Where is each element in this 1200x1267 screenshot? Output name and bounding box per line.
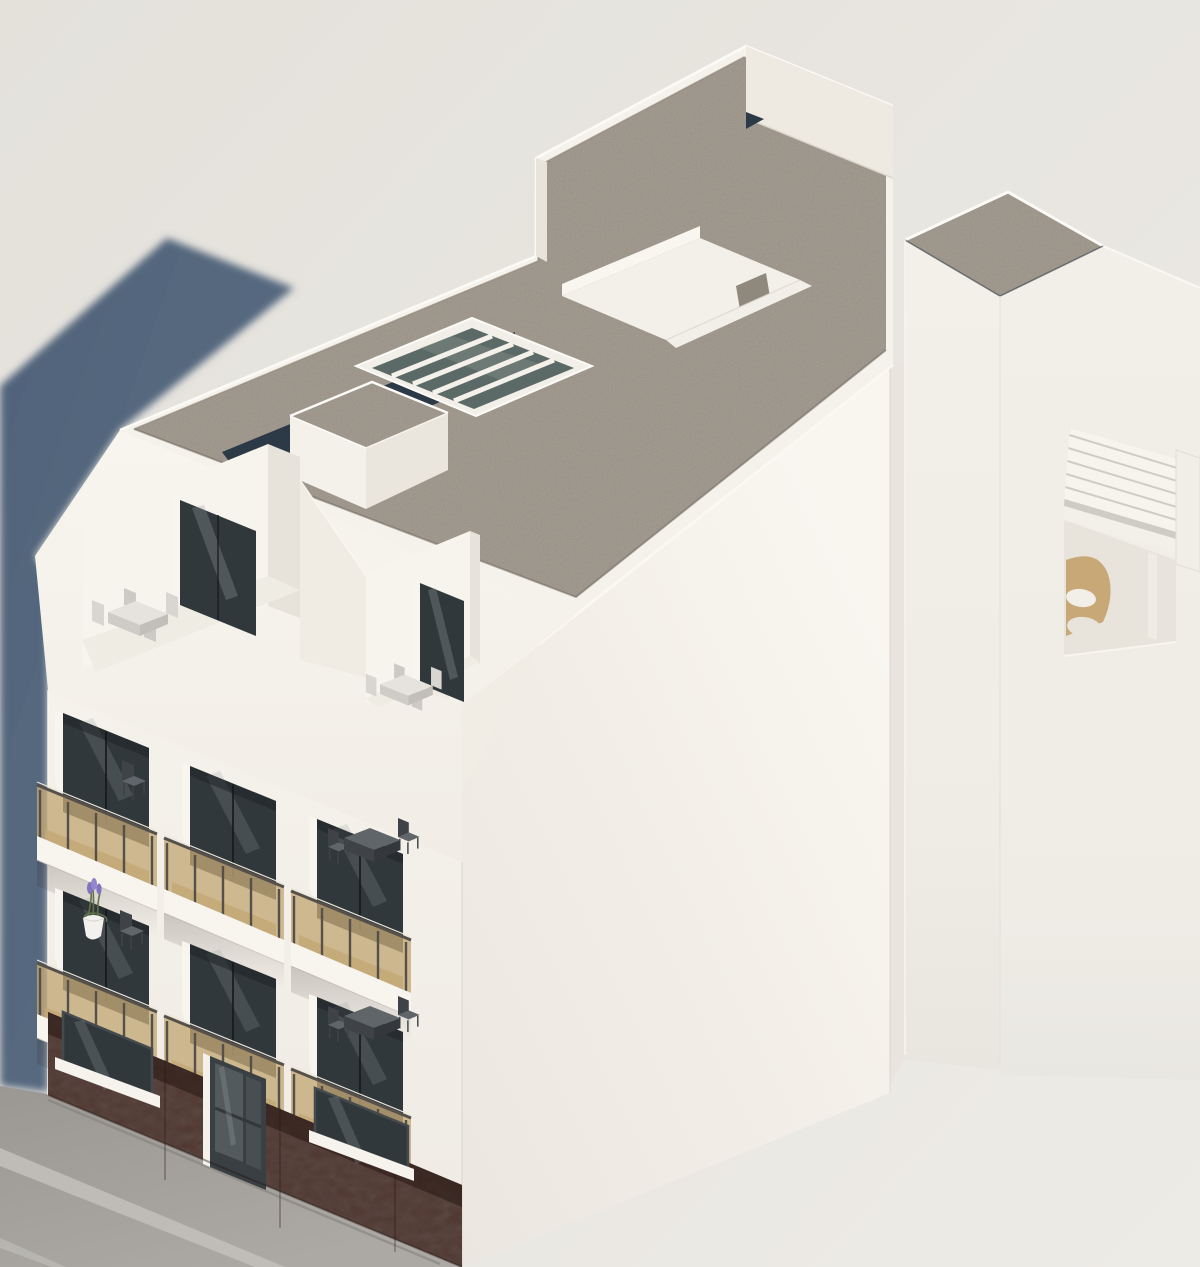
rear-wall-return	[890, 361, 905, 1085]
neighbor-building	[1000, 246, 1200, 1080]
pergola-beam	[1176, 450, 1200, 572]
architectural-render	[0, 0, 1200, 1267]
pergola-post	[1148, 552, 1157, 640]
parapet-step-face	[536, 158, 547, 262]
render-canvas	[0, 0, 1200, 1267]
